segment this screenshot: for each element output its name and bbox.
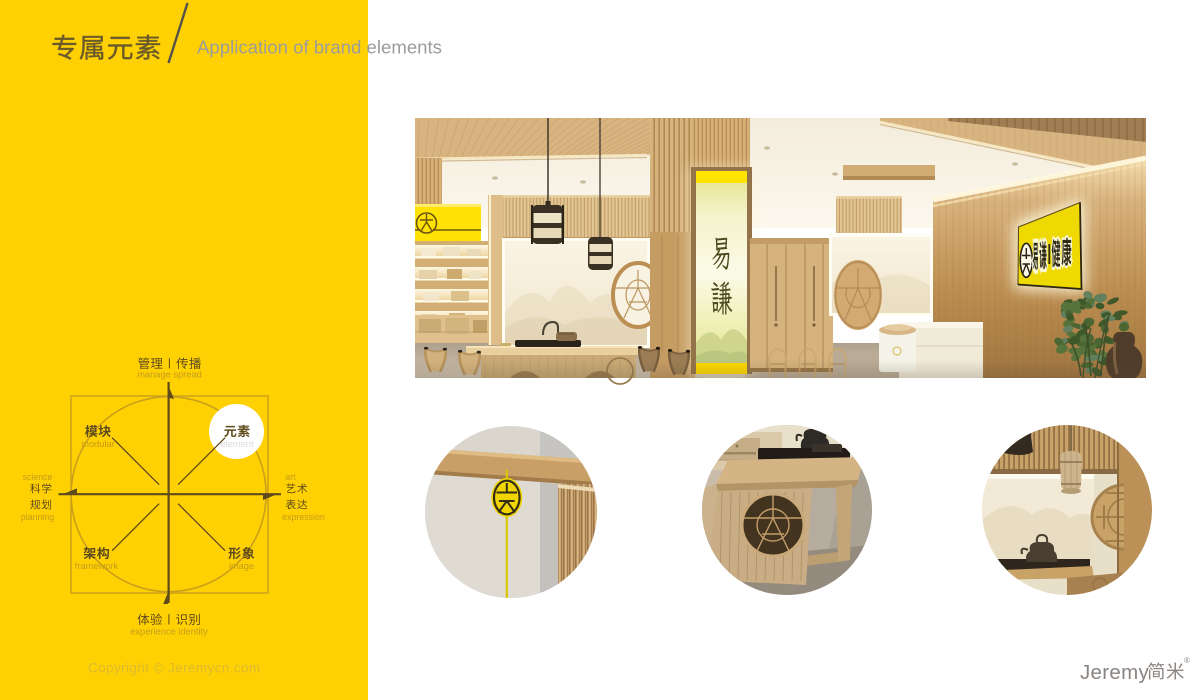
svg-text:Jeremy: Jeremy: [1080, 661, 1149, 684]
svg-text:Copyright © Jeremycn.com: Copyright © Jeremycn.com: [88, 661, 261, 676]
svg-text:image: image: [229, 561, 254, 571]
svg-text:Application of brand elements: Application of brand elements: [197, 37, 442, 58]
svg-text:manage spread: manage spread: [137, 370, 202, 380]
svg-text:®: ®: [1184, 656, 1190, 665]
svg-text:element: element: [220, 439, 253, 449]
svg-text:expression: expression: [282, 512, 325, 522]
svg-text:experience identity: experience identity: [130, 627, 208, 637]
svg-text:modular: modular: [81, 439, 115, 449]
svg-text:art: art: [285, 472, 296, 482]
svg-text:science: science: [23, 472, 53, 482]
svg-text:planning: planning: [21, 512, 54, 522]
svg-text:framework: framework: [75, 561, 119, 571]
